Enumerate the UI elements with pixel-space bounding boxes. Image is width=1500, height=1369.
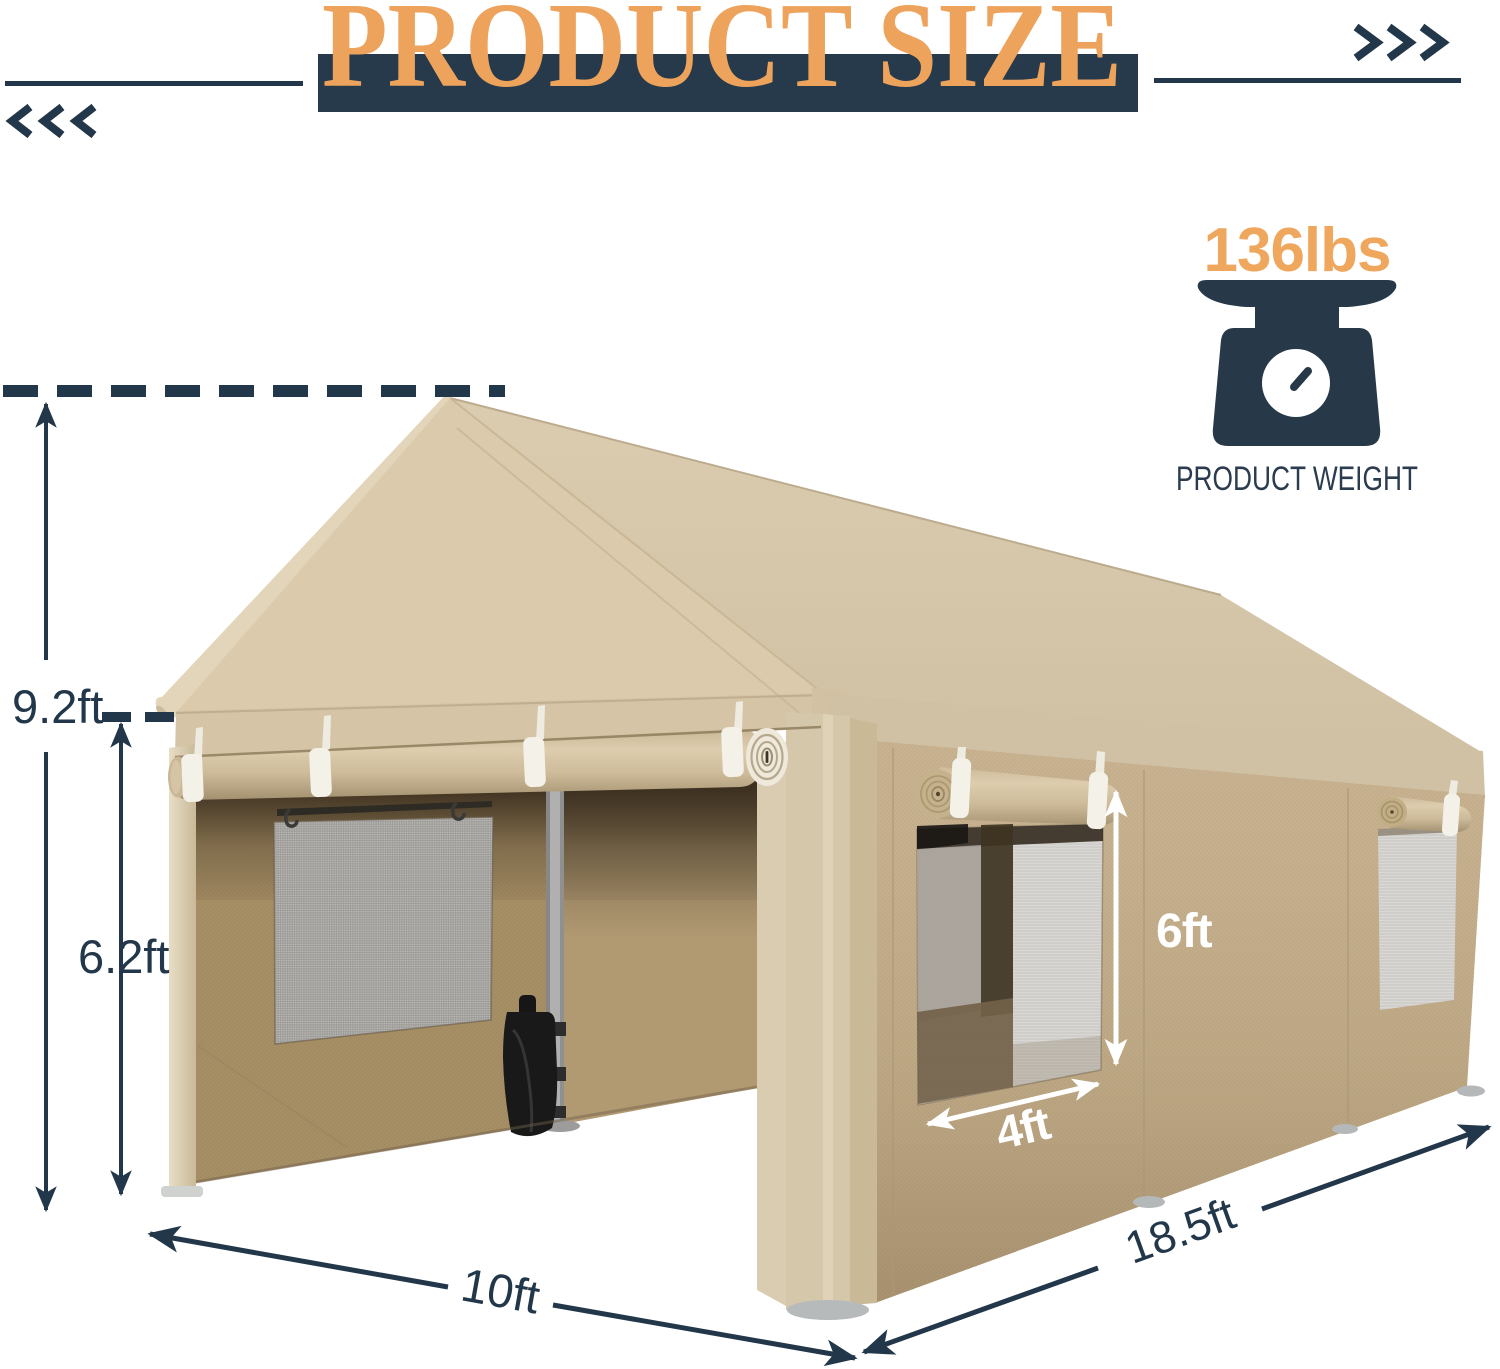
svg-text:6.2ft: 6.2ft — [78, 930, 169, 983]
svg-text:9.2ft: 9.2ft — [12, 680, 103, 733]
svg-text:PRODUCT SIZE: PRODUCT SIZE — [322, 0, 1122, 113]
svg-text:136lbs: 136lbs — [1203, 216, 1390, 285]
svg-text:6ft: 6ft — [1156, 905, 1213, 958]
svg-text:PRODUCT WEIGHT: PRODUCT WEIGHT — [1176, 460, 1418, 498]
